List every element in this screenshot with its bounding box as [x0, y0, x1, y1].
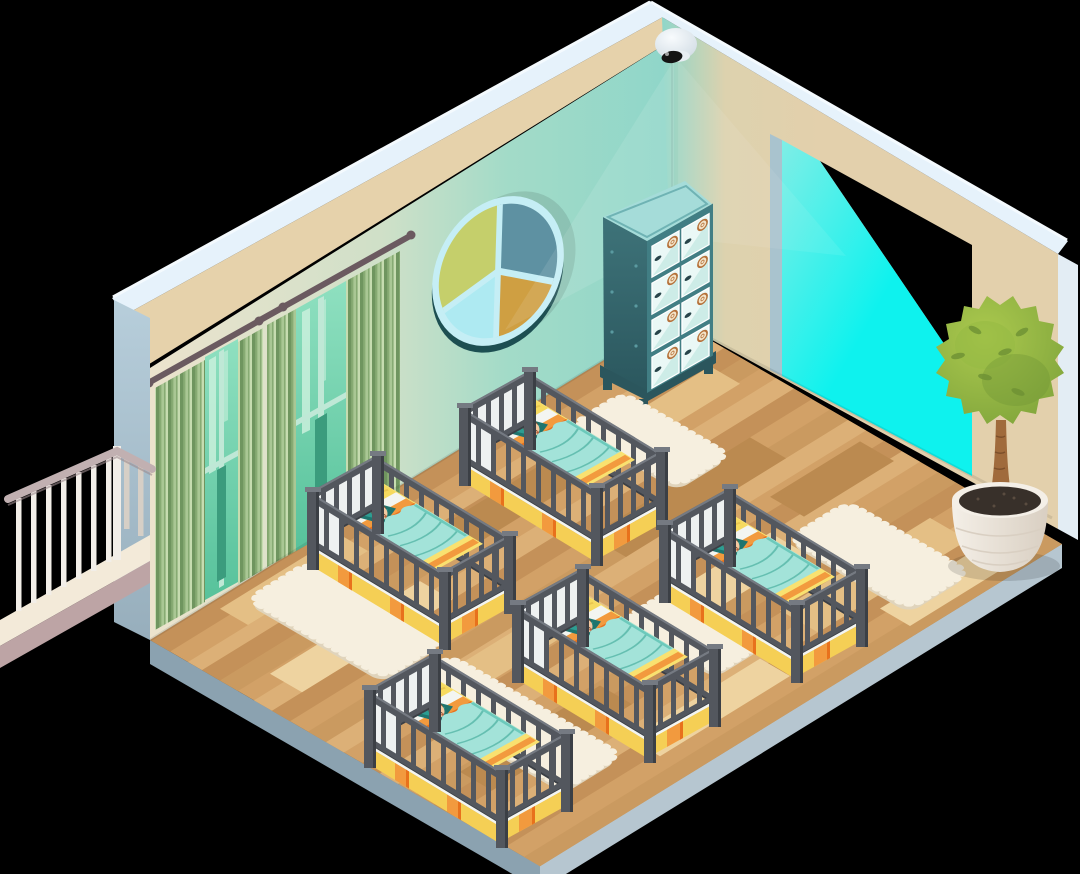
- corner-post: [113, 446, 121, 560]
- balcony-railing: [0, 446, 152, 668]
- illustration-canvas: [0, 0, 1080, 874]
- nursery-room-illustration: [0, 0, 1080, 874]
- curtain-panel: [267, 309, 296, 567]
- wall-end-face-right: [1058, 254, 1078, 540]
- curtain-panel: [155, 360, 205, 630]
- locker-side-face: [603, 217, 648, 391]
- soil: [959, 487, 1041, 516]
- curtain-panel: [238, 328, 263, 584]
